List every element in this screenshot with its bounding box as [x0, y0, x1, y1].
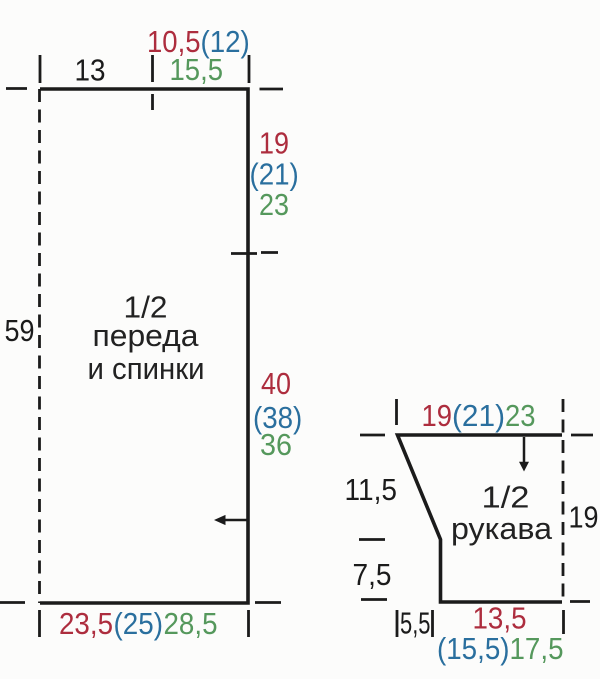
svg-text:40: 40	[261, 366, 291, 401]
svg-text:23: 23	[505, 398, 536, 433]
svg-text:23,5: 23,5	[59, 606, 113, 641]
svg-text:переда: переда	[93, 318, 200, 353]
svg-text:19: 19	[569, 500, 599, 535]
svg-text:рукава: рукава	[451, 511, 553, 546]
svg-text:19: 19	[259, 126, 289, 161]
svg-text:1/2: 1/2	[482, 480, 530, 515]
svg-text:7,5: 7,5	[353, 557, 392, 592]
svg-text:28,5: 28,5	[164, 606, 218, 641]
svg-text:59: 59	[5, 313, 35, 348]
svg-text:15,5: 15,5	[170, 52, 224, 87]
svg-text:19: 19	[422, 398, 453, 433]
svg-text:13: 13	[75, 53, 106, 88]
svg-text:11,5: 11,5	[345, 472, 398, 507]
svg-text:36: 36	[260, 427, 292, 462]
svg-text:17,5: 17,5	[510, 631, 564, 666]
svg-text:5,5: 5,5	[400, 606, 431, 641]
svg-text:и спинки: и спинки	[88, 351, 205, 386]
svg-text:23: 23	[259, 187, 289, 222]
svg-text:(25): (25)	[114, 606, 164, 641]
svg-text:(15,5): (15,5)	[437, 631, 510, 666]
svg-text:(21): (21)	[452, 398, 505, 433]
